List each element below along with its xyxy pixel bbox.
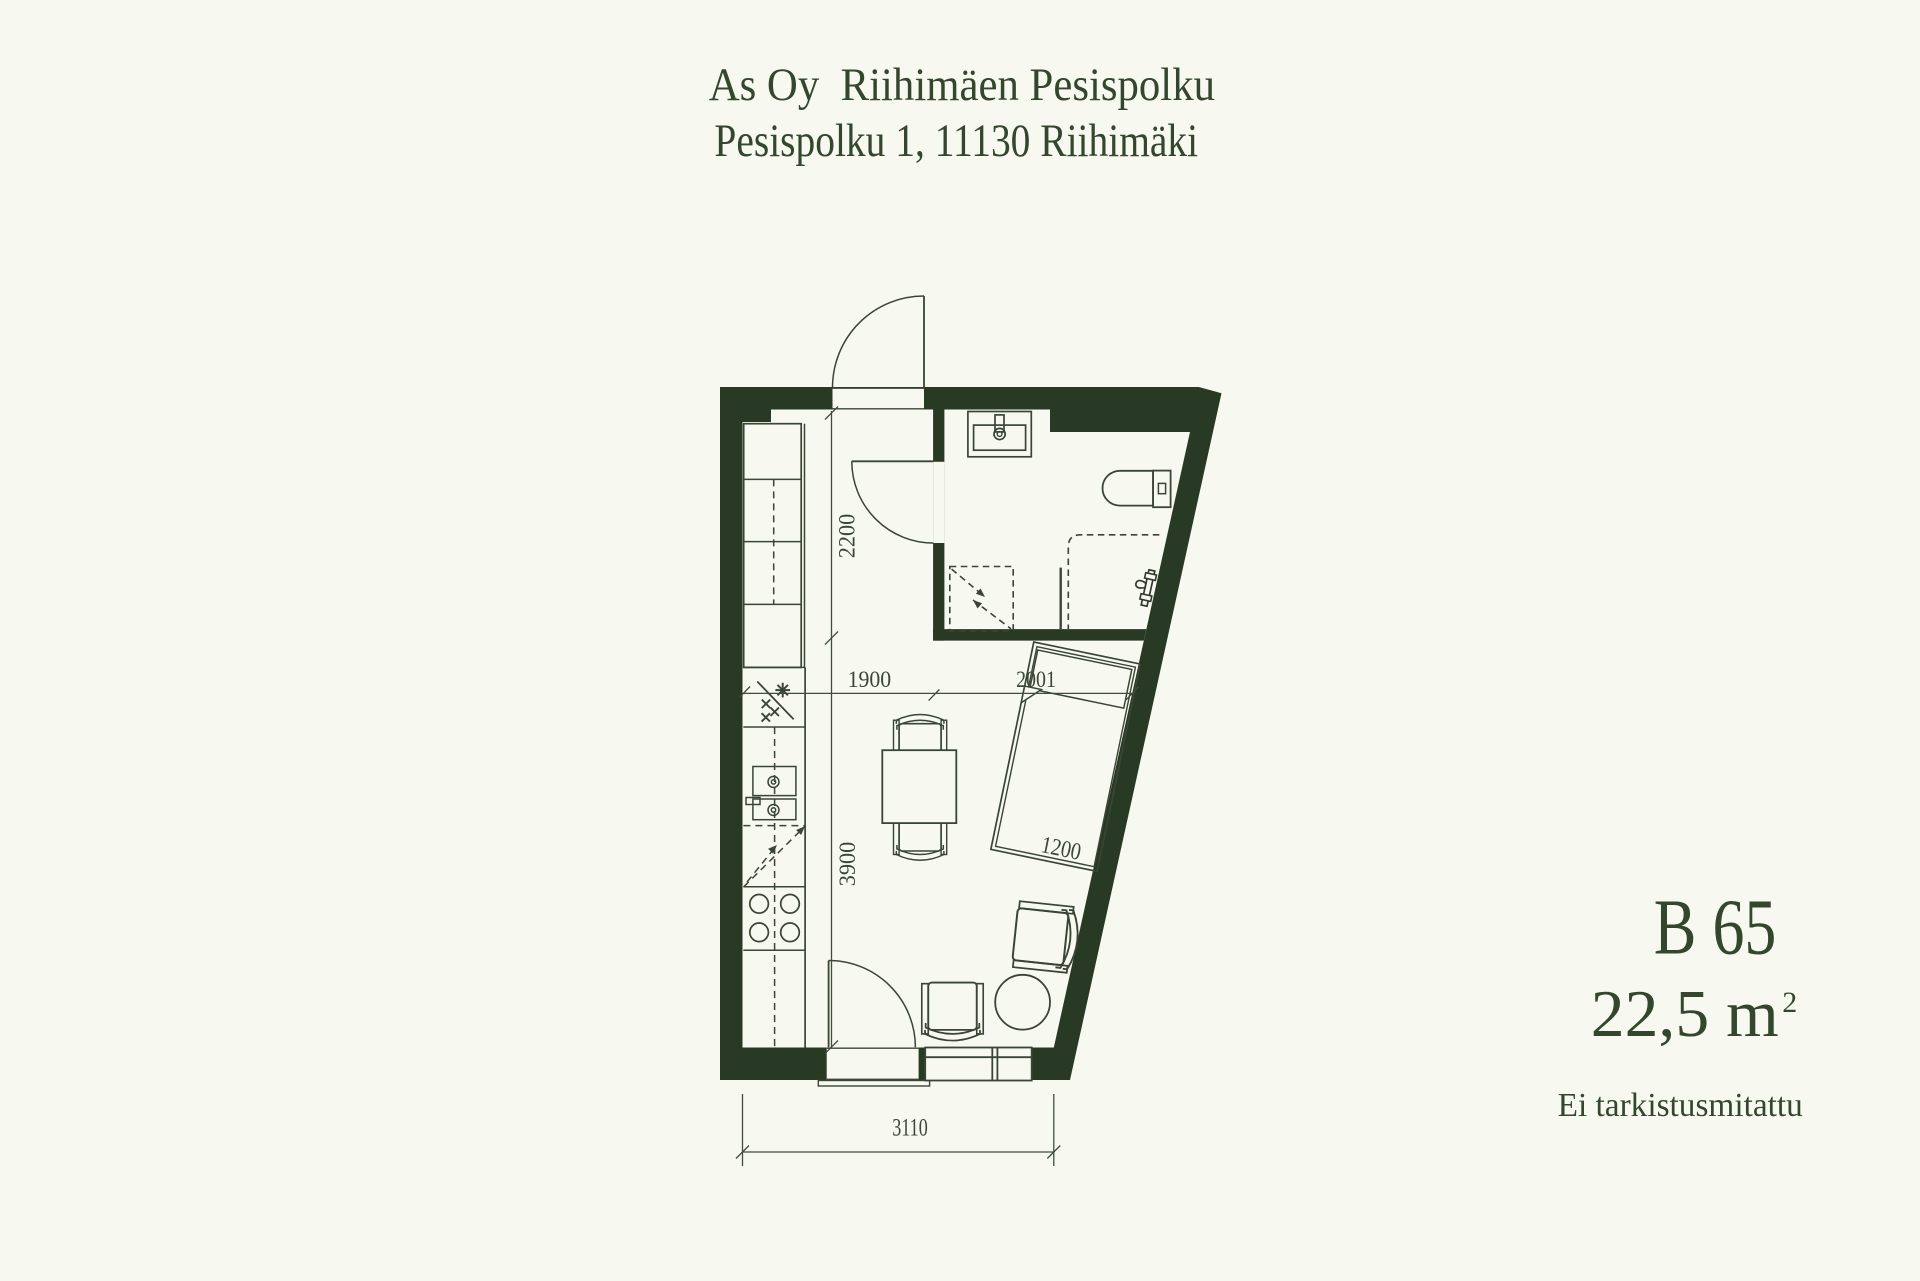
svg-text:22,5 m: 22,5 m: [1591, 977, 1779, 1051]
svg-text:As Oy Riihimäen Pesispolku: As Oy Riihimäen Pesispolku: [709, 59, 1215, 111]
svg-text:1900: 1900: [848, 667, 892, 692]
svg-text:Ei tarkistusmitattu: Ei tarkistusmitattu: [1558, 1087, 1803, 1124]
svg-text:2200: 2200: [835, 514, 860, 559]
svg-text:2: 2: [1782, 986, 1797, 1019]
svg-text:2001: 2001: [1016, 667, 1056, 692]
svg-text:3900: 3900: [835, 842, 860, 887]
svg-text:B 65: B 65: [1654, 884, 1777, 971]
svg-text:Pesispolku 1, 11130 Riihimäki: Pesispolku 1, 11130 Riihimäki: [714, 115, 1198, 167]
svg-text:3110: 3110: [892, 1115, 928, 1142]
